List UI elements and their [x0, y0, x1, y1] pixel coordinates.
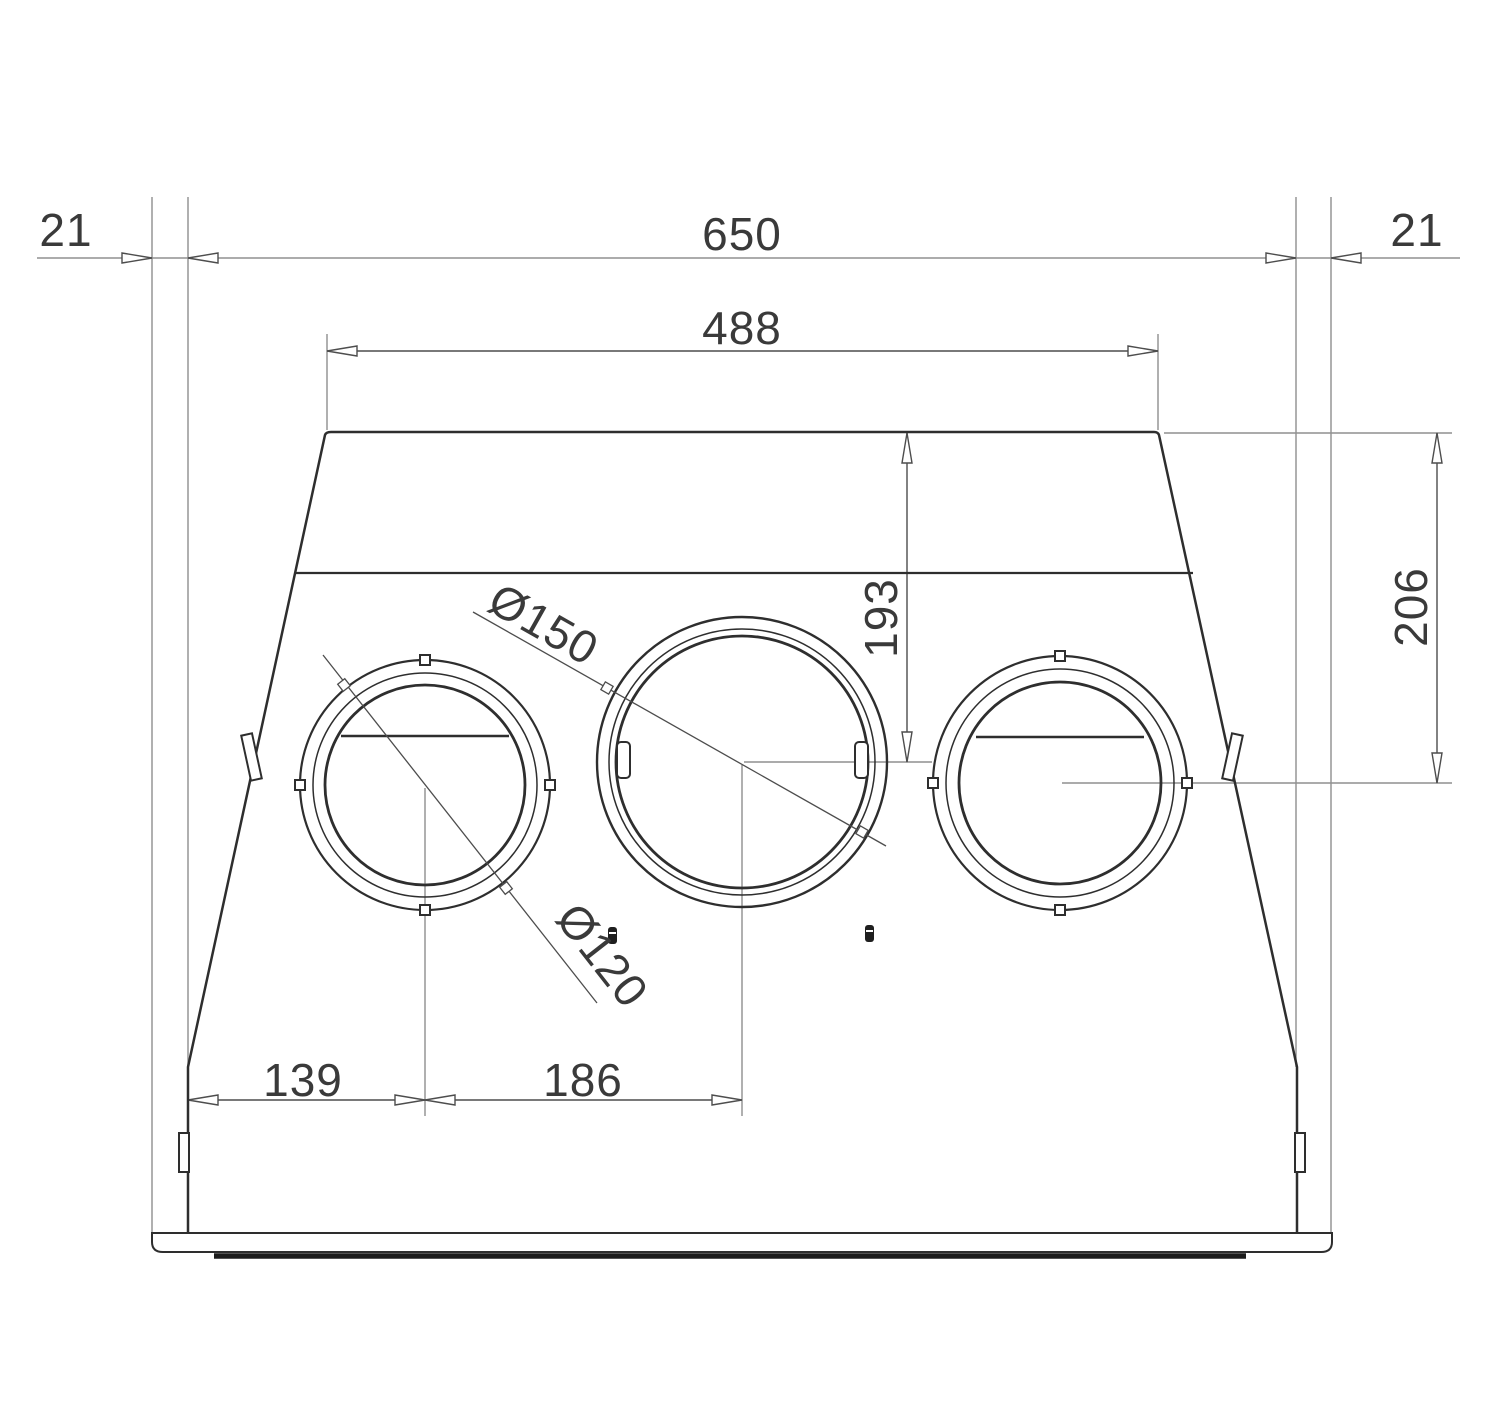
middle-duct-tab-right [855, 742, 868, 778]
arrow-offset-shared-a [395, 1095, 425, 1105]
leader-marker-large-a [601, 682, 613, 694]
arrow-overhang-left-b [188, 253, 218, 263]
dim-label-top-width: 488 [702, 302, 782, 354]
dim-label-depth-center: 193 [855, 578, 907, 658]
technical-drawing-page: 21 650 21 488 193 206 Ø150 Ø120 139 186 [0, 0, 1500, 1427]
arrow-top-width-left [327, 346, 357, 356]
arrow-overhang-left-a [122, 253, 152, 263]
screw-right-icon [865, 925, 874, 942]
dimension-lines [37, 258, 1460, 1100]
arrow-depth-center-top [902, 433, 912, 463]
arrow-depth-side-top [1432, 433, 1442, 463]
left-edge-clip [179, 1133, 189, 1172]
leader-marker-small-a [338, 679, 351, 692]
left-duct-tab-left [295, 780, 305, 790]
arrow-top-width-right [1128, 346, 1158, 356]
leader-diameter-small [323, 655, 597, 1003]
left-duct-tab-top [420, 655, 430, 665]
right-edge-clip [1295, 1133, 1305, 1172]
arrow-overhang-right-a [1266, 253, 1296, 263]
left-duct-tab-right [545, 780, 555, 790]
arrow-offset-left-start [188, 1095, 218, 1105]
right-duct-tab-bottom [1055, 905, 1065, 915]
left-duct-tab-bottom [420, 905, 430, 915]
arrow-depth-center-bottom [902, 732, 912, 762]
dim-label-offset-left: 139 [263, 1054, 343, 1106]
dimension-arrows [122, 253, 1442, 1105]
bottom-plate [152, 1233, 1332, 1252]
arrow-overhang-right-b [1331, 253, 1361, 263]
arrow-depth-side-bottom [1432, 753, 1442, 783]
right-duct-tab-top [1055, 651, 1065, 661]
middle-duct-tab-left [617, 742, 630, 778]
dim-label-overhang-left: 21 [39, 204, 92, 256]
dim-label-overhang-right: 21 [1390, 204, 1443, 256]
dim-label-depth-side: 206 [1385, 567, 1437, 647]
drawing-canvas: 21 650 21 488 193 206 Ø150 Ø120 139 186 [0, 0, 1500, 1427]
dim-label-diameter-small: Ø120 [546, 893, 659, 1017]
dim-label-diameter-large: Ø150 [480, 573, 607, 676]
dim-label-overall-width: 650 [702, 208, 782, 260]
arrow-offset-shared-b [425, 1095, 455, 1105]
right-duct-tab-right [1182, 778, 1192, 788]
dim-label-offset-center: 186 [543, 1054, 623, 1106]
screws [608, 925, 874, 944]
right-duct-tab-left [928, 778, 938, 788]
arrow-offset-center-end [712, 1095, 742, 1105]
